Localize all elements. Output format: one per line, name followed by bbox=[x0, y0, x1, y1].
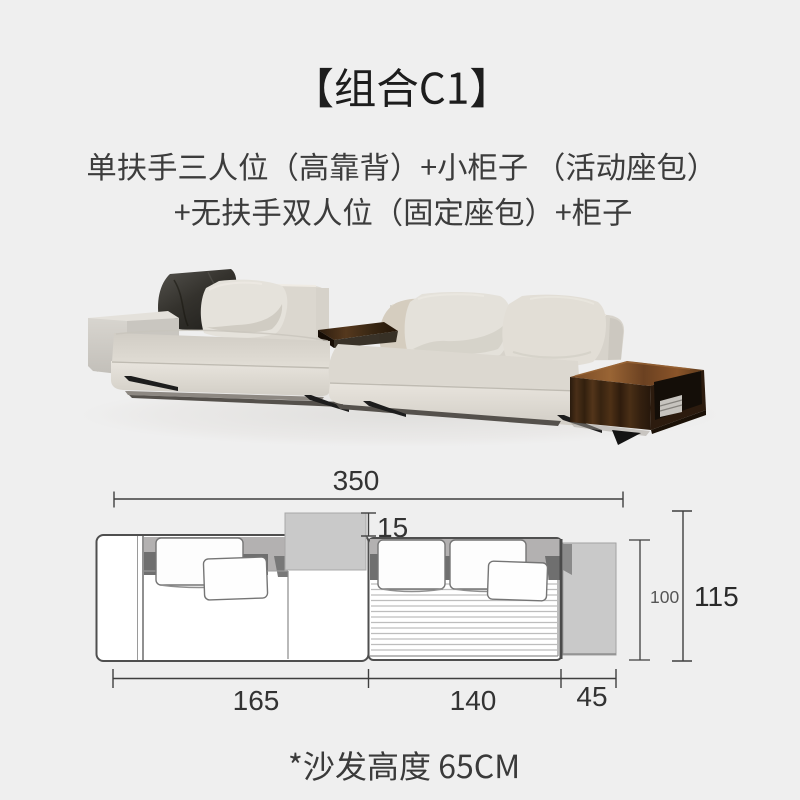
svg-text:350: 350 bbox=[333, 465, 380, 496]
svg-text:115: 115 bbox=[694, 581, 739, 612]
svg-text:100: 100 bbox=[650, 587, 679, 607]
svg-text:45: 45 bbox=[576, 681, 607, 712]
svg-text:140: 140 bbox=[450, 685, 497, 716]
svg-text:165: 165 bbox=[233, 685, 280, 716]
